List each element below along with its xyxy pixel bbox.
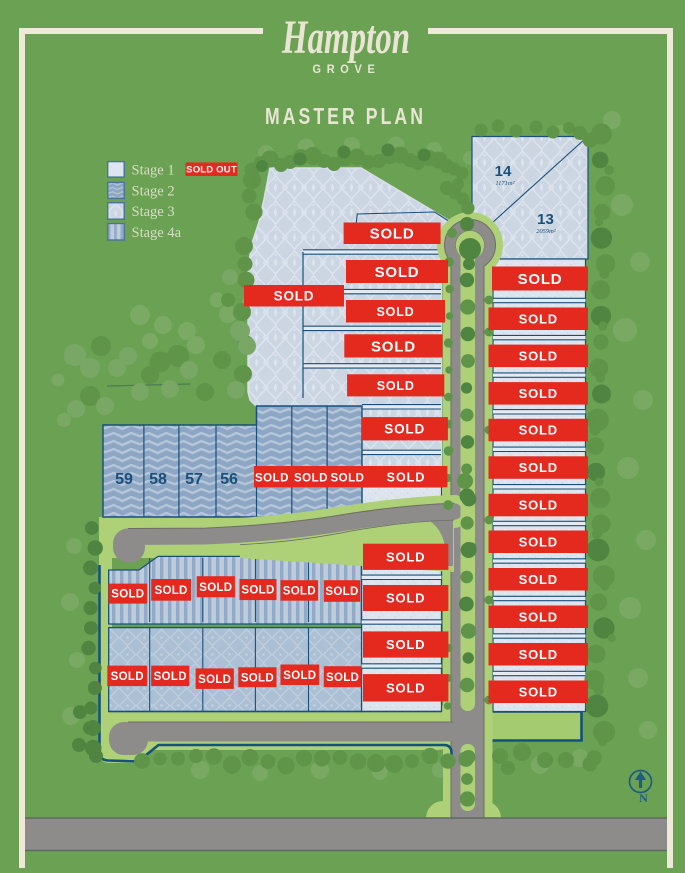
svg-text:SOLD: SOLD (274, 289, 315, 304)
svg-text:SOLD: SOLD (387, 471, 426, 485)
svg-text:Hampton: Hampton (281, 11, 410, 64)
svg-text:SOLD: SOLD (386, 637, 425, 652)
svg-text:Stage 2: Stage 2 (132, 184, 175, 200)
svg-text:SOLD: SOLD (386, 591, 425, 606)
svg-text:SOLD: SOLD (199, 582, 232, 594)
svg-text:SOLD: SOLD (519, 534, 558, 549)
svg-text:GROVE: GROVE (313, 64, 381, 76)
svg-text:SOLD: SOLD (519, 684, 558, 699)
svg-text:SOLD: SOLD (386, 549, 425, 564)
svg-text:SOLD: SOLD (370, 226, 415, 243)
svg-text:14: 14 (495, 163, 512, 180)
svg-text:SOLD: SOLD (519, 647, 558, 662)
svg-text:N: N (639, 791, 648, 805)
svg-text:SOLD: SOLD (519, 609, 558, 624)
svg-text:SOLD: SOLD (154, 671, 187, 683)
svg-text:SOLD: SOLD (255, 472, 289, 484)
svg-text:Stage 3: Stage 3 (132, 204, 175, 220)
svg-text:SOLD: SOLD (519, 349, 558, 364)
svg-text:SOLD: SOLD (375, 264, 420, 281)
svg-text:SOLD: SOLD (384, 422, 425, 437)
svg-text:SOLD: SOLD (294, 472, 328, 484)
svg-text:SOLD: SOLD (241, 672, 274, 684)
svg-text:13: 13 (537, 211, 554, 228)
svg-text:57: 57 (185, 471, 203, 488)
svg-text:Stage 1: Stage 1 (132, 163, 175, 179)
svg-text:SOLD: SOLD (283, 586, 316, 598)
svg-text:SOLD: SOLD (518, 271, 563, 288)
svg-text:56: 56 (220, 471, 238, 488)
svg-text:SOLD: SOLD (326, 672, 359, 684)
svg-text:SOLD: SOLD (325, 586, 358, 598)
svg-text:Stage 4a: Stage 4a (132, 225, 182, 241)
svg-text:SOLD: SOLD (155, 585, 188, 597)
svg-text:1171m²: 1171m² (495, 180, 515, 187)
svg-text:SOLD: SOLD (377, 305, 415, 319)
svg-text:SOLD OUT: SOLD OUT (186, 165, 237, 176)
svg-text:SOLD: SOLD (283, 670, 316, 682)
svg-text:58: 58 (149, 471, 167, 488)
svg-text:SOLD: SOLD (519, 498, 558, 513)
svg-text:SOLD: SOLD (519, 423, 558, 438)
svg-text:SOLD: SOLD (198, 674, 231, 686)
svg-text:SOLD: SOLD (371, 338, 416, 355)
svg-text:2059m²: 2059m² (536, 228, 557, 235)
svg-text:SOLD: SOLD (377, 379, 415, 393)
svg-text:SOLD: SOLD (519, 311, 558, 326)
svg-text:SOLD: SOLD (111, 589, 144, 601)
svg-text:59: 59 (115, 471, 133, 488)
svg-text:SOLD: SOLD (331, 472, 365, 484)
svg-text:SOLD: SOLD (111, 671, 144, 683)
svg-text:SOLD: SOLD (519, 572, 558, 587)
svg-text:SOLD: SOLD (519, 460, 558, 475)
svg-text:SOLD: SOLD (519, 386, 558, 401)
svg-text:MASTER PLAN: MASTER PLAN (265, 103, 426, 129)
svg-text:SOLD: SOLD (386, 680, 425, 695)
svg-text:SOLD: SOLD (241, 585, 274, 597)
